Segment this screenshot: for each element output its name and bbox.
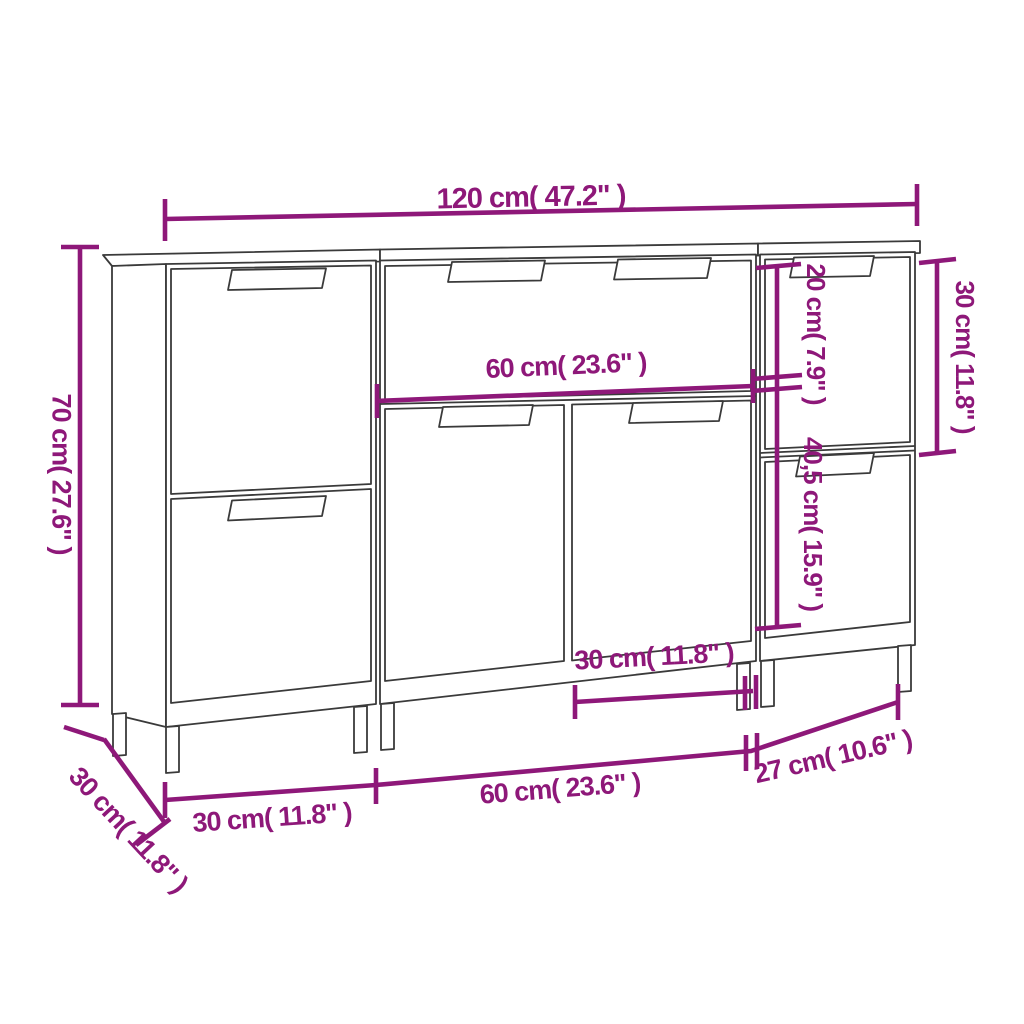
dim-total-width-label: 120 cm( 47.2" )	[436, 182, 626, 215]
dim-middle-top-width-label: 60 cm( 23.6" )	[485, 349, 647, 383]
dim-height-label: 70 cm( 27.6" )	[48, 394, 75, 555]
dim-right-inner-lower-label: 40,5 cm( 15.9" )	[800, 437, 826, 611]
middle-cabinet	[380, 244, 758, 751]
dim-right-inner-upper-label: 20 cm( 7.9" )	[803, 264, 829, 405]
right-cabinet	[758, 241, 920, 707]
dimension-diagram: 120 cm( 47.2" ) 70 cm( 27.6" ) 60 cm( 23…	[0, 0, 1024, 1024]
left-cabinet	[103, 250, 380, 774]
dim-right-upper-door-height-label: 30 cm( 11.8" )	[952, 281, 978, 434]
